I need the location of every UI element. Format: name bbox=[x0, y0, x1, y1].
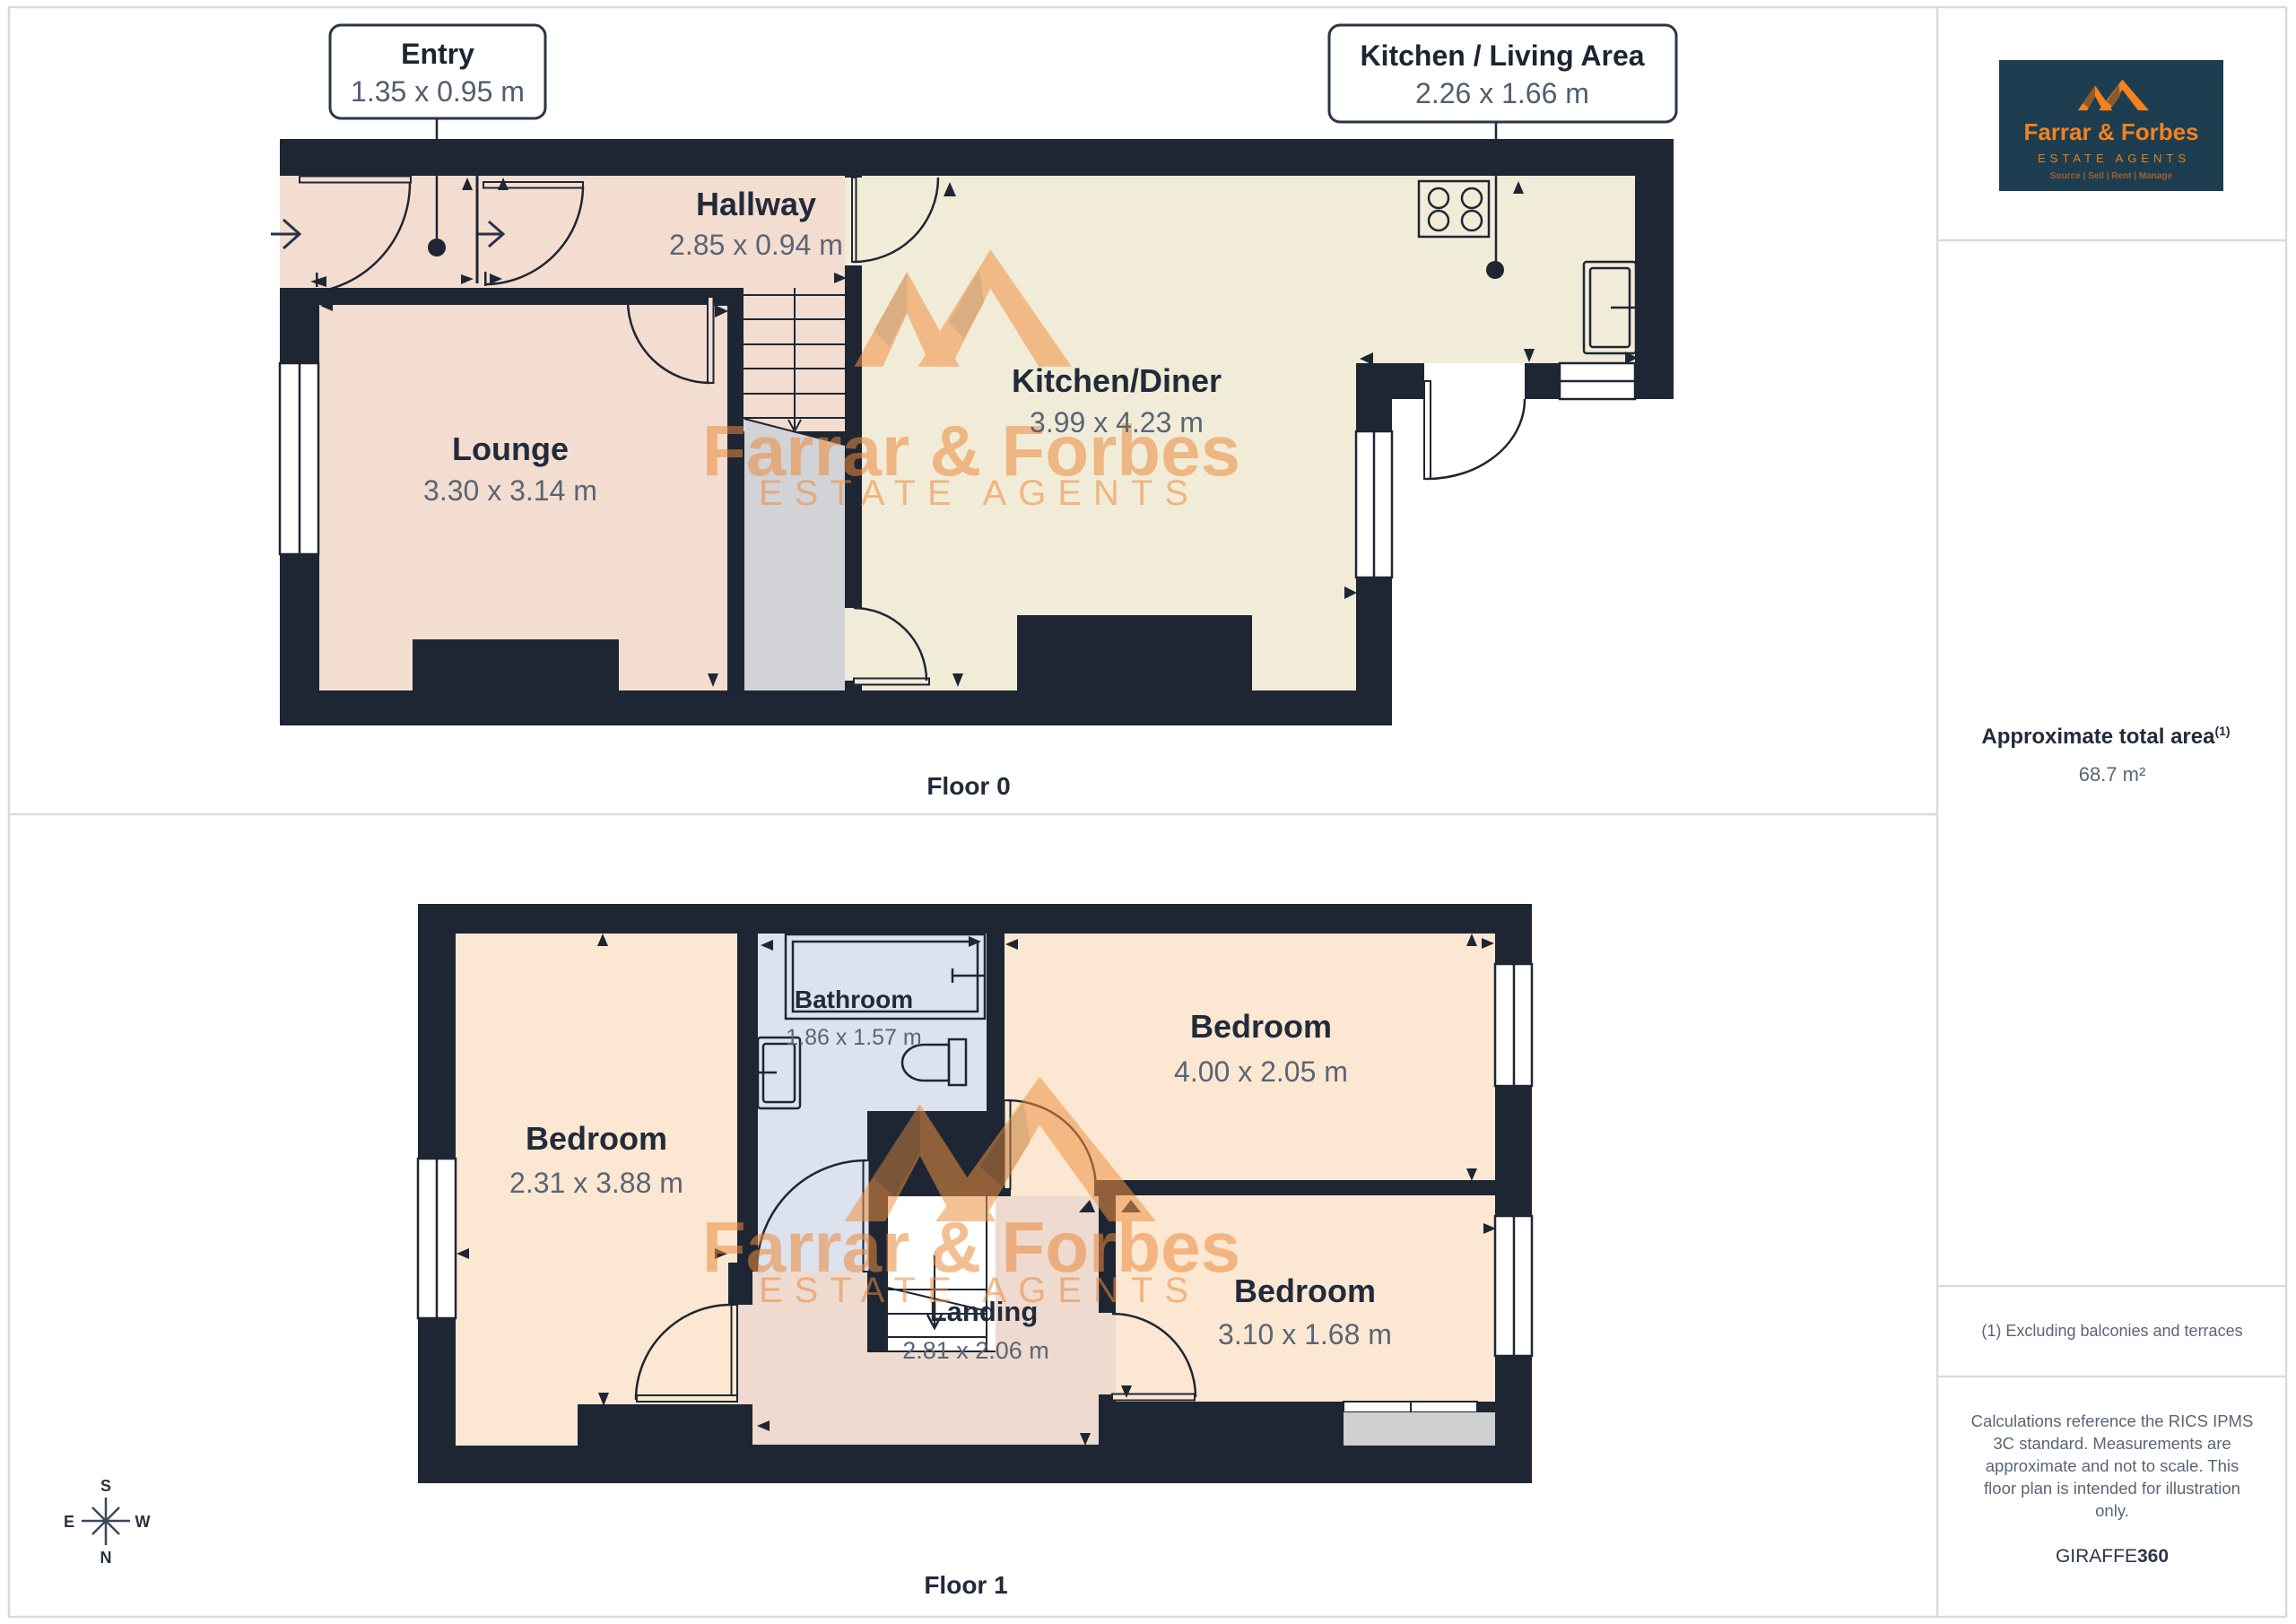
svg-text:Landing: Landing bbox=[930, 1296, 1039, 1327]
svg-text:Floor 1: Floor 1 bbox=[924, 1571, 1007, 1599]
svg-text:approximate and not to scale.: approximate and not to scale. This bbox=[1986, 1456, 2239, 1475]
svg-text:3.99 x 4.23 m: 3.99 x 4.23 m bbox=[1030, 406, 1204, 439]
svg-text:Hallway: Hallway bbox=[696, 186, 816, 222]
svg-text:1.86 x 1.57 m: 1.86 x 1.57 m bbox=[786, 1025, 921, 1050]
svg-text:GIRAFFE360: GIRAFFE360 bbox=[2056, 1546, 2169, 1567]
svg-text:(1) Excluding balconies and te: (1) Excluding balconies and terraces bbox=[1981, 1322, 2242, 1340]
svg-text:3.10 x 1.68 m: 3.10 x 1.68 m bbox=[1218, 1318, 1392, 1350]
svg-text:2.26 x 1.66 m: 2.26 x 1.66 m bbox=[1415, 77, 1589, 109]
svg-text:68.7 m²: 68.7 m² bbox=[2079, 763, 2146, 786]
svg-text:floor plan is intended for ill: floor plan is intended for illustration bbox=[1984, 1479, 2240, 1498]
svg-text:Bathroom: Bathroom bbox=[795, 986, 913, 1013]
svg-text:2.81 x 2.06 m: 2.81 x 2.06 m bbox=[902, 1337, 1049, 1364]
svg-text:Approximate total area(1): Approximate total area(1) bbox=[1981, 724, 2230, 749]
svg-text:S: S bbox=[100, 1477, 111, 1495]
svg-text:2.31 x 3.88 m: 2.31 x 3.88 m bbox=[509, 1167, 683, 1199]
svg-text:Farrar & Forbes: Farrar & Forbes bbox=[2023, 118, 2198, 145]
svg-text:Calculations reference the RIC: Calculations reference the RICS IPMS bbox=[1971, 1411, 2254, 1430]
svg-text:3C standard. Measurements are: 3C standard. Measurements are bbox=[1993, 1434, 2231, 1453]
svg-text:Bedroom: Bedroom bbox=[1234, 1272, 1376, 1309]
svg-text:Source | Sell | Rent | Manage: Source | Sell | Rent | Manage bbox=[2050, 171, 2173, 181]
svg-text:ESTATE AGENTS: ESTATE AGENTS bbox=[759, 473, 1200, 513]
svg-text:ESTATE AGENTS: ESTATE AGENTS bbox=[2038, 152, 2190, 165]
svg-text:Entry: Entry bbox=[401, 38, 474, 70]
svg-text:Floor 0: Floor 0 bbox=[926, 772, 1010, 800]
svg-text:N: N bbox=[100, 1549, 112, 1567]
svg-text:Bedroom: Bedroom bbox=[526, 1120, 667, 1157]
svg-text:Kitchen/Diner: Kitchen/Diner bbox=[1012, 362, 1222, 399]
svg-text:W: W bbox=[135, 1513, 151, 1531]
svg-text:1.35 x 0.95 m: 1.35 x 0.95 m bbox=[351, 75, 525, 108]
svg-text:only.: only. bbox=[2095, 1501, 2129, 1520]
svg-text:4.00 x 2.05 m: 4.00 x 2.05 m bbox=[1174, 1055, 1348, 1088]
svg-text:E: E bbox=[64, 1513, 74, 1531]
svg-text:Kitchen / Living Area: Kitchen / Living Area bbox=[1360, 39, 1644, 72]
svg-text:Lounge: Lounge bbox=[452, 430, 569, 467]
svg-text:2.85 x 0.94 m: 2.85 x 0.94 m bbox=[669, 229, 843, 261]
svg-text:3.30 x 3.14 m: 3.30 x 3.14 m bbox=[423, 474, 597, 507]
svg-text:Bedroom: Bedroom bbox=[1190, 1008, 1332, 1045]
